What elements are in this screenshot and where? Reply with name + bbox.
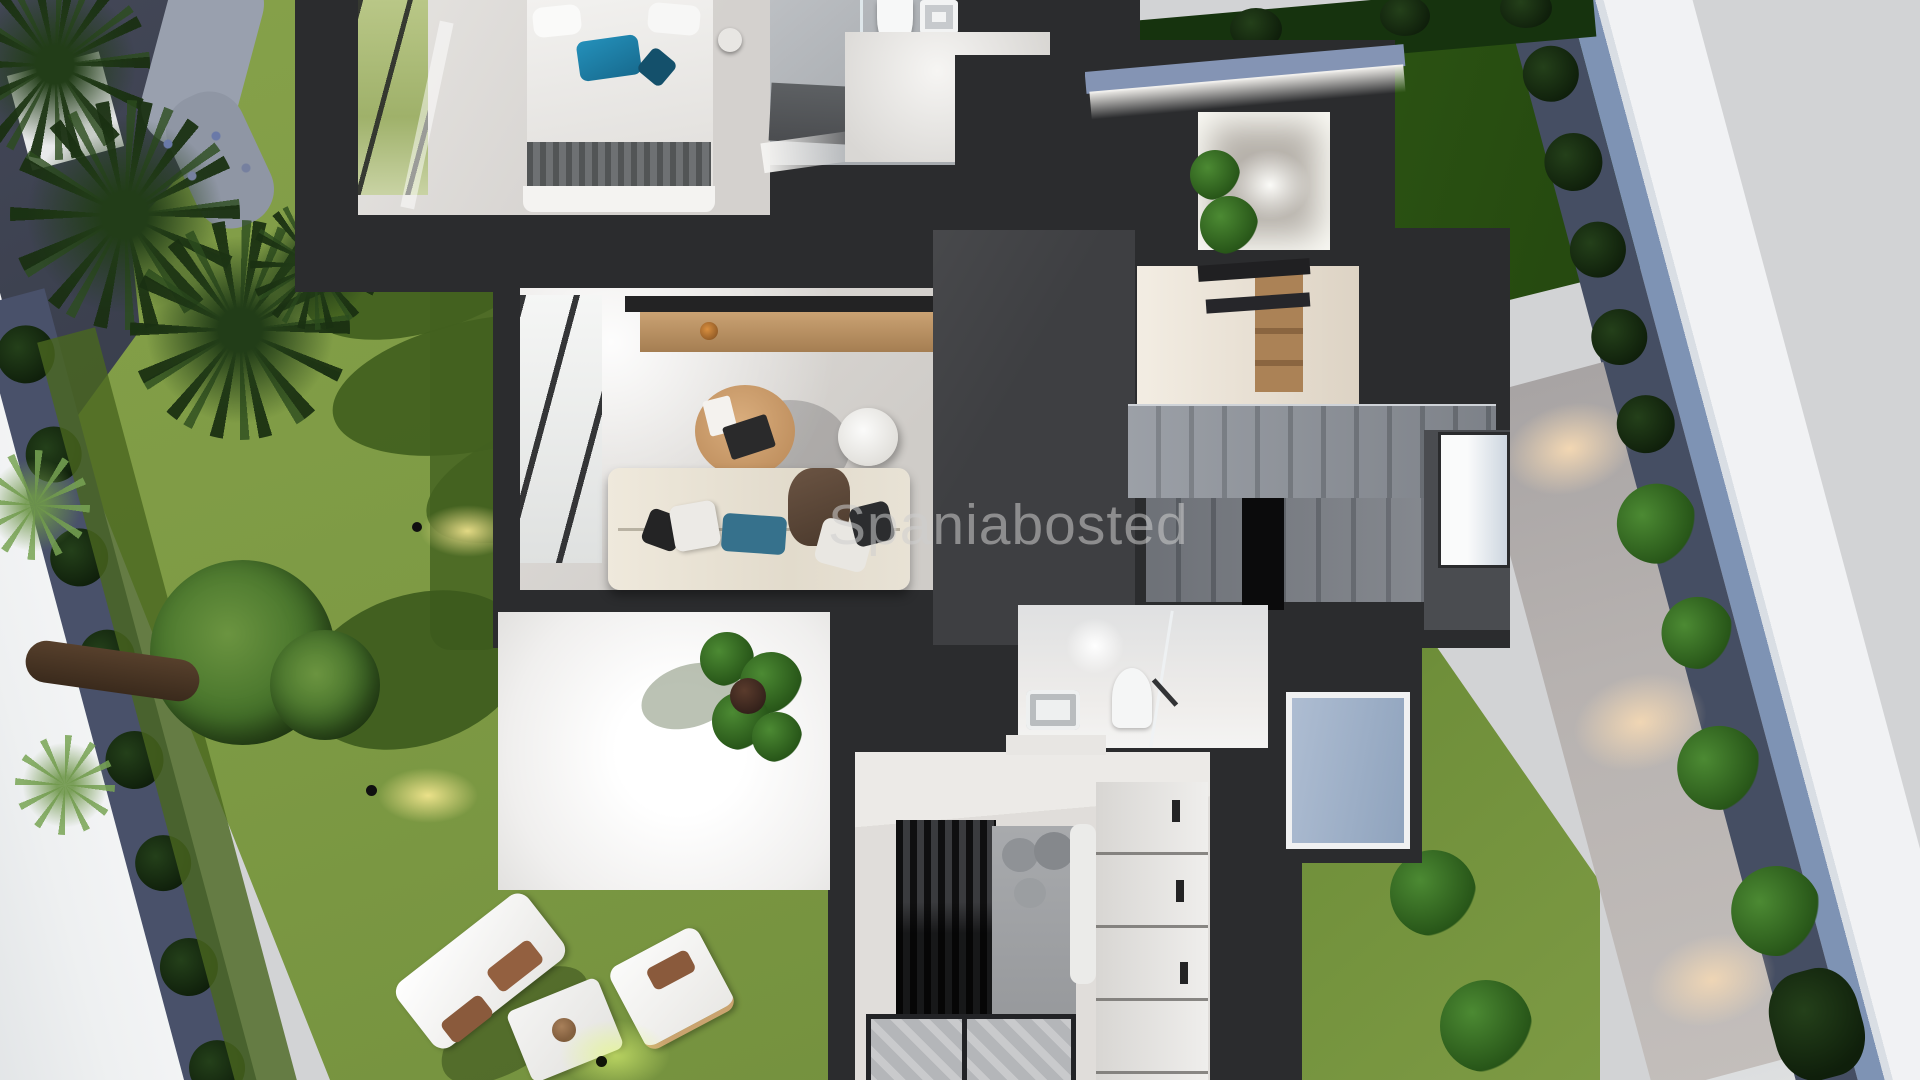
stairwell-void — [1242, 498, 1284, 610]
rug-bed-bottom — [866, 1014, 1076, 1080]
curtains — [896, 820, 996, 1015]
bedroom2-door-gap — [1006, 735, 1106, 755]
entry-inner-wall — [955, 55, 1085, 163]
rear-window — [1286, 692, 1410, 849]
wardrobe-handle — [1172, 800, 1180, 822]
bedside-table — [718, 28, 742, 52]
rug-bed-divider — [962, 1014, 967, 1080]
sofa-pillow-white — [668, 499, 721, 552]
sink — [920, 0, 958, 34]
tv-shelf-wood — [640, 312, 935, 352]
sink — [1026, 690, 1080, 730]
wooden-bench — [1255, 270, 1303, 392]
garden-light — [366, 785, 377, 796]
bathroom2-ceiling-light — [1066, 618, 1124, 674]
bed1-pillow-teal — [576, 34, 643, 82]
garden-light — [412, 522, 422, 532]
lightwell-plant — [1190, 150, 1240, 200]
bed1-runner-blanket — [527, 142, 711, 188]
landing-window — [1438, 432, 1510, 568]
livingroom-window — [520, 295, 602, 563]
wardrobe — [1096, 782, 1208, 1080]
plant-pot — [730, 678, 766, 714]
wardrobe-handle — [1176, 880, 1184, 902]
plant — [1440, 980, 1532, 1072]
terrace-plant — [752, 712, 802, 762]
stair-hall-floor — [1137, 266, 1359, 408]
central-slate-floor — [933, 230, 1135, 645]
bed2-headboard — [1070, 824, 1096, 984]
bed2-pillow — [1002, 838, 1038, 872]
pouf — [838, 408, 898, 466]
bed1-pillow-white — [532, 4, 583, 39]
watermark: Spaniabosted — [828, 492, 1189, 558]
bed2-pillow — [1034, 832, 1074, 870]
bed1-headboard — [523, 186, 715, 212]
garden-light-glow — [378, 768, 478, 823]
garden-light — [596, 1056, 607, 1067]
shelf-plant — [700, 322, 718, 340]
palm-frond-light — [15, 735, 115, 835]
bed1-pillow-white — [647, 2, 701, 36]
tv-media-band — [625, 296, 935, 312]
bed2-pillow — [1014, 878, 1046, 908]
tree — [270, 630, 380, 740]
toilet — [1112, 668, 1152, 728]
villa-floorplan-render: Spaniabosted — [0, 0, 1920, 1080]
wardrobe-handle — [1180, 962, 1188, 984]
sofa-pillow-teal — [721, 513, 787, 555]
lightwell-plant — [1200, 196, 1258, 254]
flower-speckles — [150, 120, 270, 200]
